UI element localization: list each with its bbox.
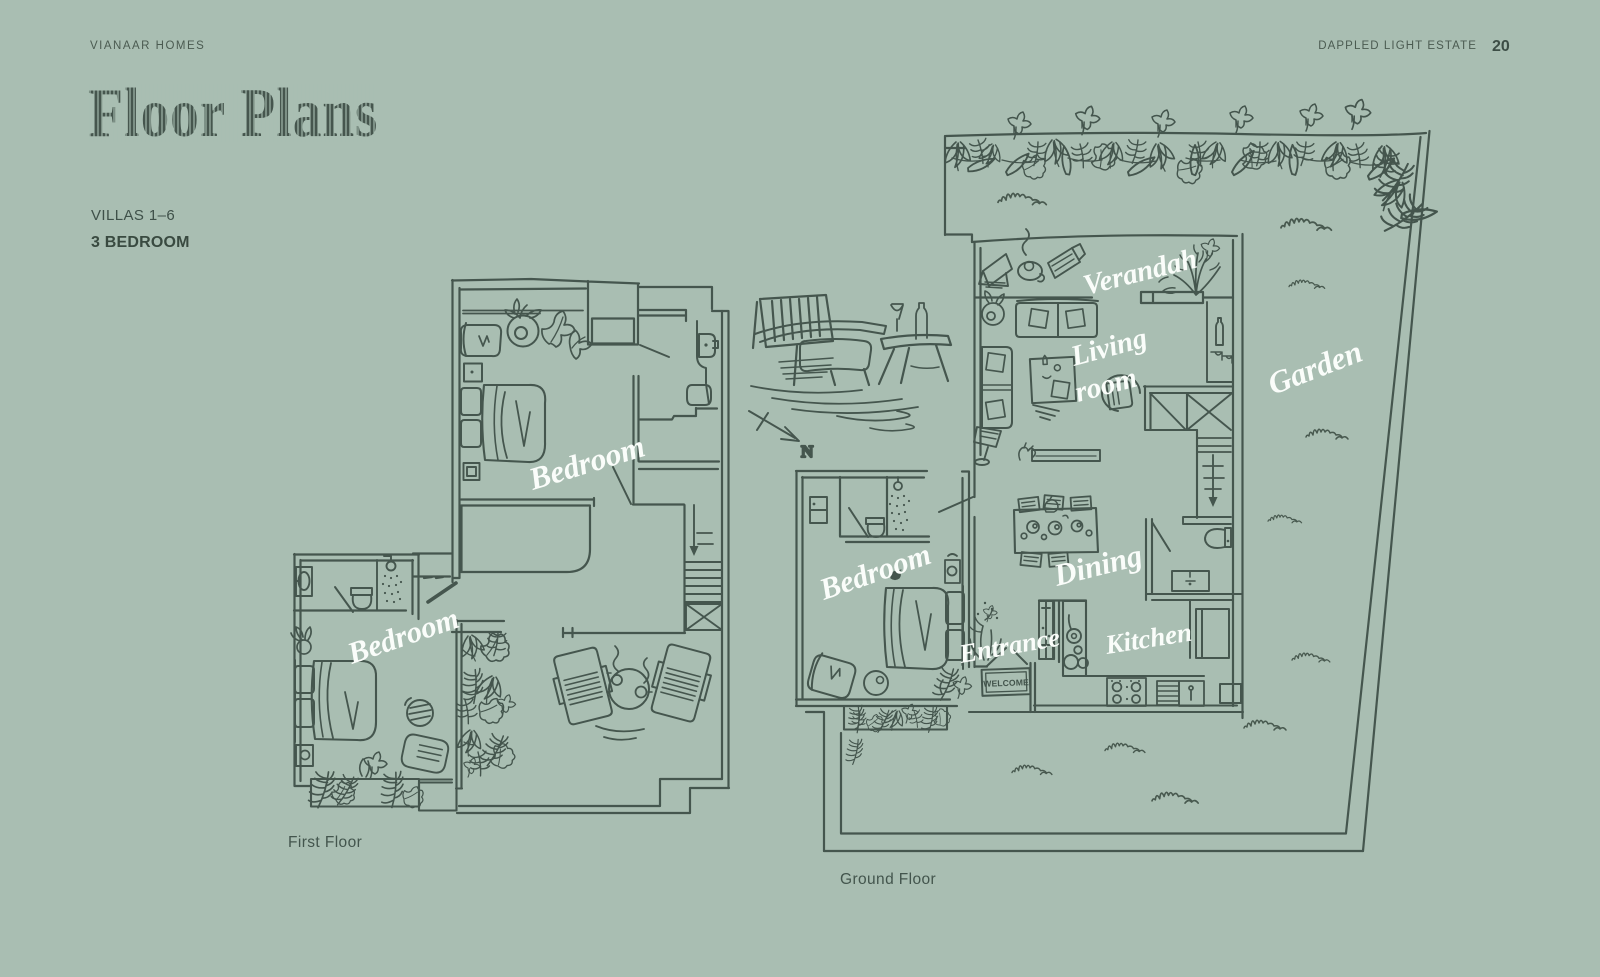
svg-text:N: N bbox=[801, 442, 814, 461]
svg-text:VIANAAR HOMES: VIANAAR HOMES bbox=[90, 40, 205, 52]
svg-text:20: 20 bbox=[1492, 38, 1510, 55]
svg-text:VILLAS 1–6: VILLAS 1–6 bbox=[91, 207, 175, 224]
svg-text:First Floor: First Floor bbox=[288, 834, 362, 851]
svg-text:DAPPLED LIGHT ESTATE: DAPPLED LIGHT ESTATE bbox=[1318, 40, 1477, 52]
svg-text:Floor Plans: Floor Plans bbox=[88, 74, 378, 152]
svg-text:3 BEDROOM: 3 BEDROOM bbox=[91, 234, 190, 251]
svg-text:WELCOME: WELCOME bbox=[983, 677, 1029, 689]
svg-text:Ground Floor: Ground Floor bbox=[840, 871, 936, 888]
